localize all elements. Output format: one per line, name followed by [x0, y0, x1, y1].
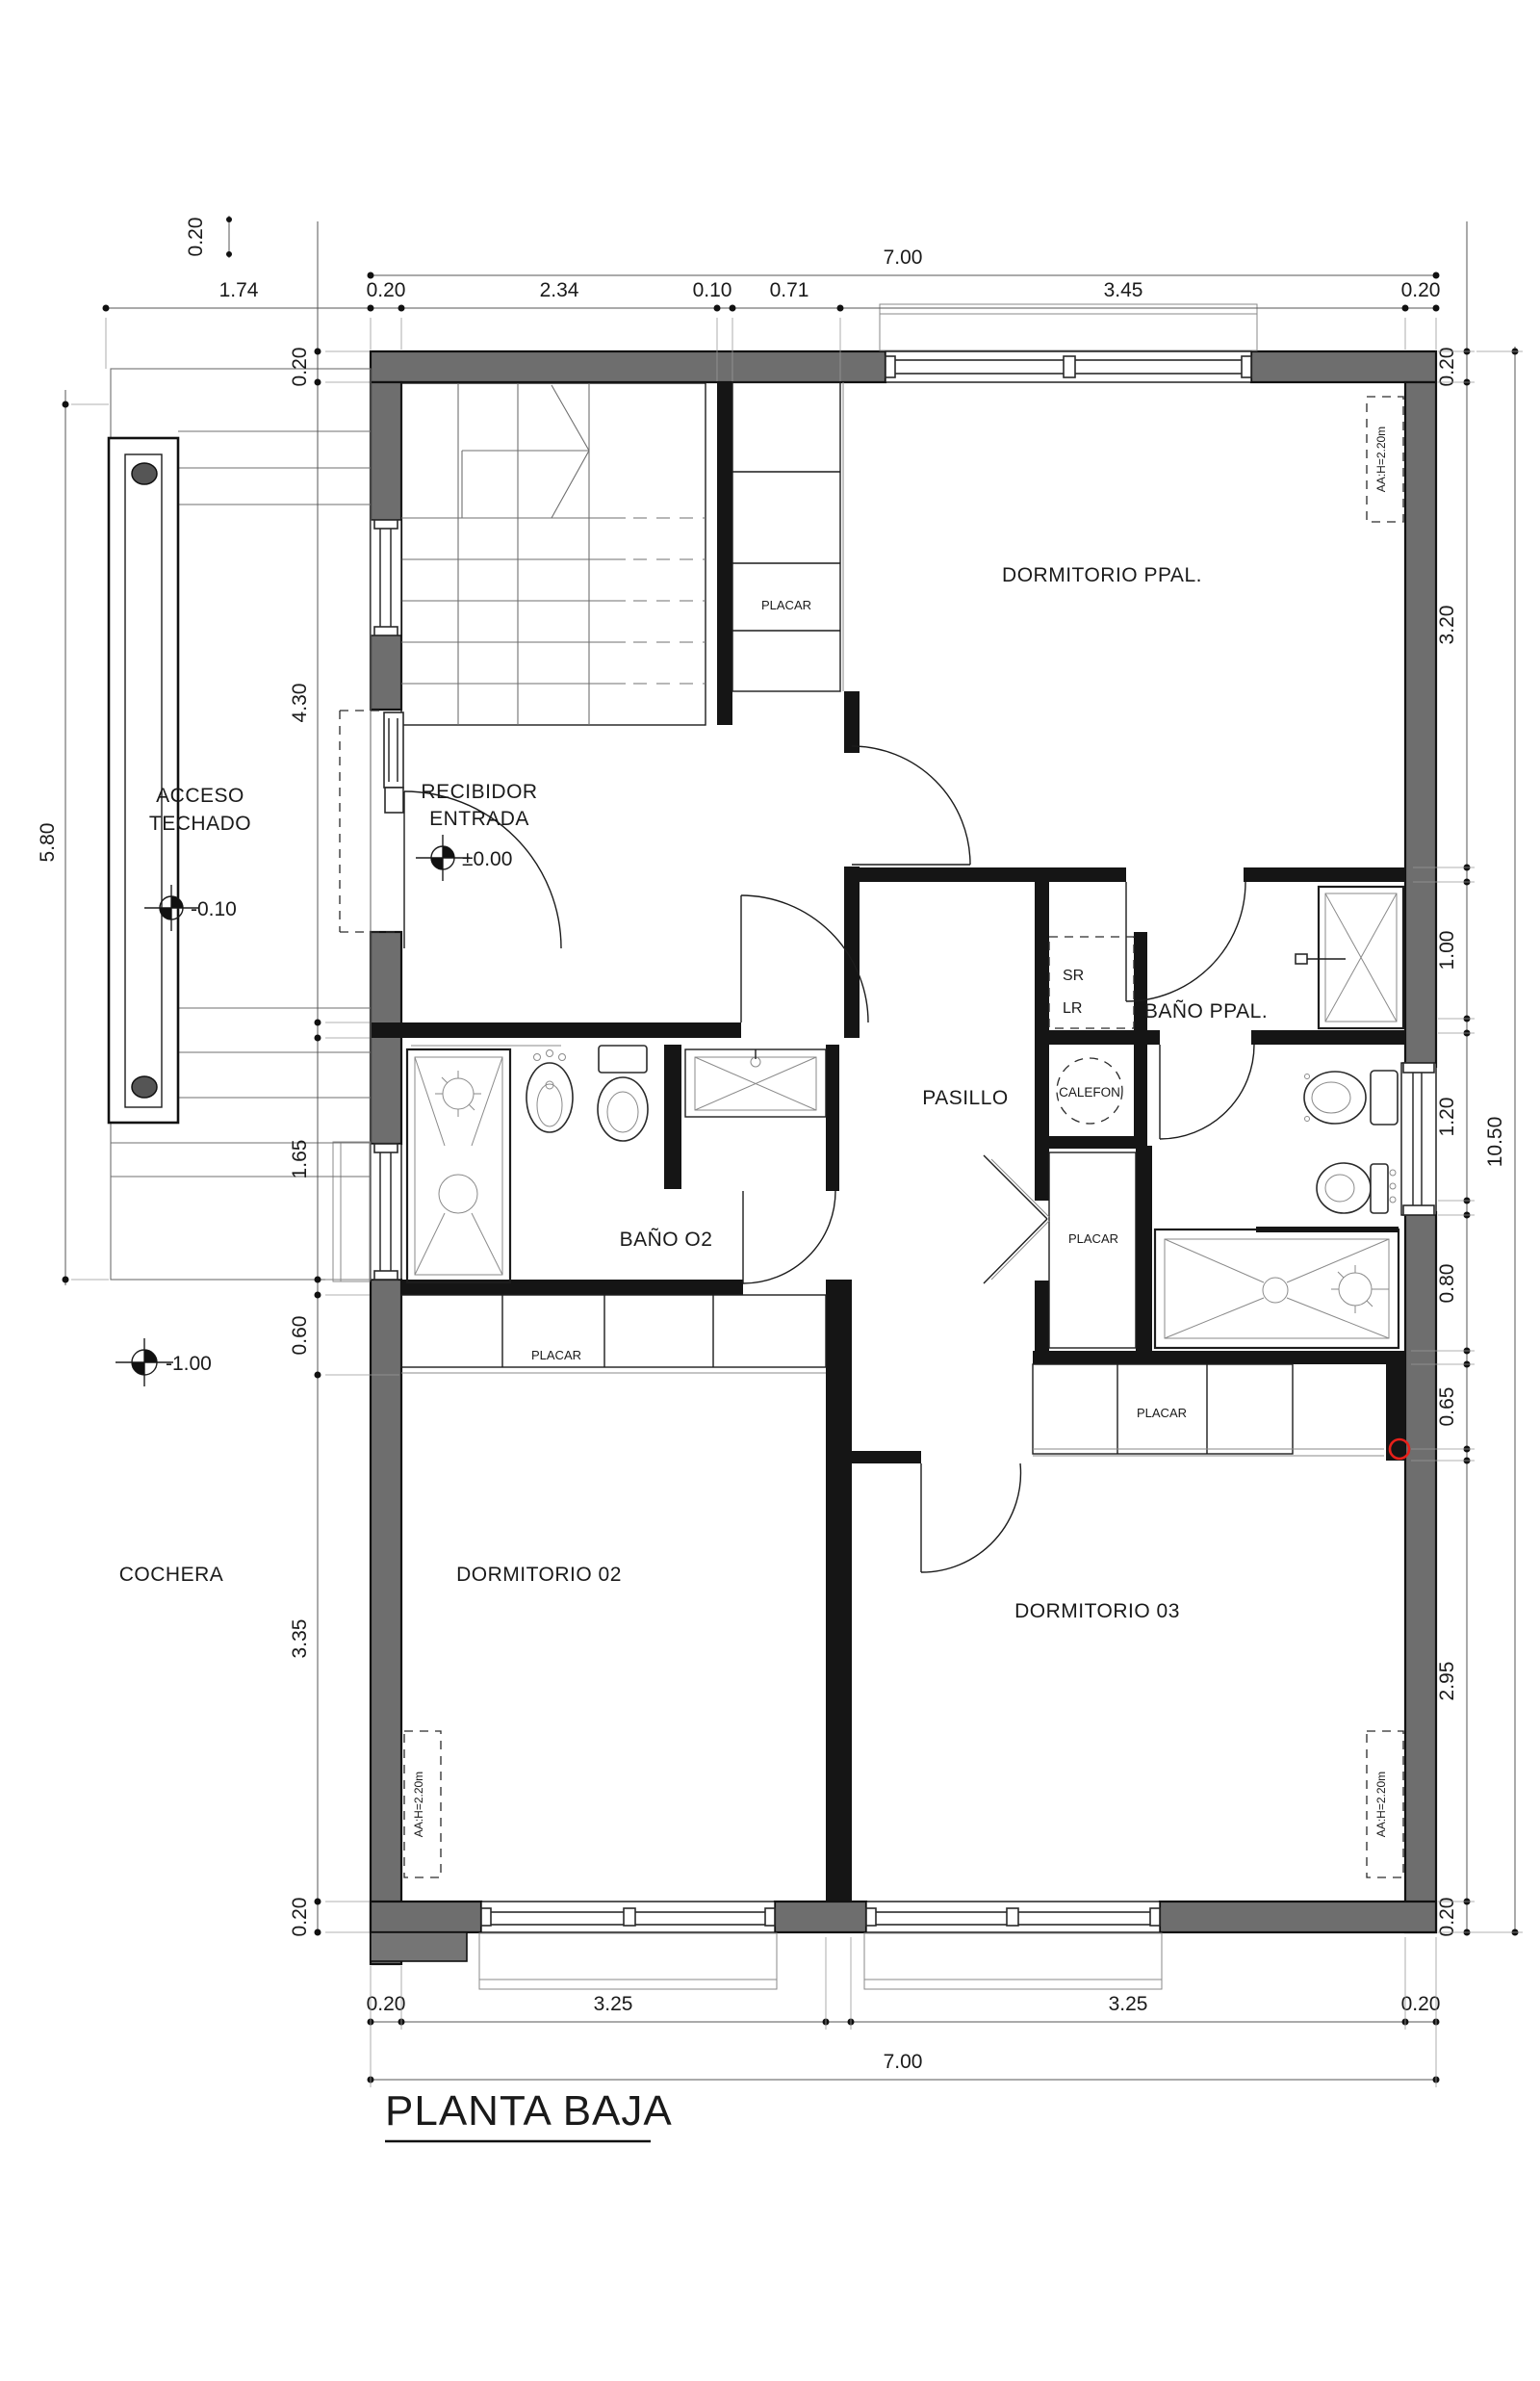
dim-left-2: 1.65	[289, 1140, 311, 1179]
dim-left-3: 0.60	[289, 1316, 311, 1356]
cochera-label: COCHERA	[119, 1564, 224, 1586]
window-stairs-left	[371, 520, 401, 635]
level-marker-recibidor: ±0.00	[416, 835, 512, 881]
dim-right-overall: 10.50	[1484, 1117, 1506, 1168]
window-dorm03-bottom	[864, 1902, 1162, 1989]
door-bano02	[743, 1191, 835, 1283]
dim-top-overall: 7.00	[884, 246, 923, 269]
dimension-bottom: 0.20 3.25 3.25 0.20 7.00	[367, 1937, 1441, 2087]
dim-top-4: 0.71	[770, 279, 809, 301]
faucet-icon	[1339, 1273, 1372, 1306]
dim-top-5: 3.45	[1104, 279, 1143, 301]
dim-left-1: 4.30	[289, 684, 311, 723]
dim-top-6: 0.20	[1401, 279, 1441, 301]
dim-right-7: 0.20	[1436, 1898, 1458, 1937]
closet-hall: PLACAR	[732, 382, 843, 691]
closet-dorm03: PLACAR	[1033, 1364, 1384, 1456]
dim-left-outer: 5.80	[37, 823, 59, 863]
recibidor-label-1: RECIBIDOR	[421, 781, 537, 803]
dorm02-label: DORMITORIO 02	[456, 1564, 622, 1586]
dim-bottom-2: 3.25	[1109, 1993, 1148, 2015]
toilet	[598, 1046, 648, 1141]
shower-tray-ppal	[1296, 887, 1403, 1028]
stair-direction-arrow	[552, 385, 589, 518]
bano-ppal-label: BAÑO PPAL.	[1144, 999, 1268, 1022]
dim-right-4: 0.80	[1436, 1264, 1458, 1304]
calefon: CALEFON	[1057, 1058, 1122, 1124]
dim-top-0: 1.74	[219, 279, 259, 301]
window-bano-ppal-right	[1401, 1063, 1436, 1215]
dim-right-1: 3.20	[1436, 606, 1458, 645]
floor-plan-page: PLACAR PLACAR PLACAR PLACAR	[0, 0, 1540, 2381]
acceso-label-1: ACCESO	[156, 785, 244, 807]
ac-label-dorm03: AA:H=2.20m	[1374, 1772, 1388, 1837]
dorm-ppal-label: DORMITORIO PPAL.	[1002, 564, 1202, 586]
dim-left-4: 3.35	[289, 1619, 311, 1659]
closet-dorm03-label: PLACAR	[1137, 1406, 1187, 1420]
closet-pasillo: PLACAR	[984, 1152, 1136, 1348]
window-bano02-left	[333, 1142, 401, 1281]
door-bano-ppal-lower	[1160, 1045, 1254, 1139]
acceso-label-2: TECHADO	[149, 813, 251, 835]
ac-label-dorm-ppal: AA:H=2.20m	[1374, 427, 1388, 492]
ac-labels: AA:H=2.20m AA:H=2.20m AA:H=2.20m	[404, 397, 1403, 1877]
column	[132, 1076, 157, 1098]
exterior-walls	[371, 351, 1436, 1964]
drawing-title: PLANTA BAJA	[385, 2087, 673, 2135]
dim-right-5: 0.65	[1436, 1387, 1458, 1427]
porch-columns	[109, 438, 178, 1123]
closet-dorm02-label: PLACAR	[531, 1348, 581, 1362]
shower-valve-icon	[1296, 954, 1307, 964]
dim-right-6: 2.95	[1436, 1662, 1458, 1701]
calefon-label: CALEFON	[1059, 1085, 1120, 1100]
sink-counter	[685, 1049, 826, 1117]
lr-label: LR	[1063, 1000, 1082, 1017]
dim-right-2: 1.00	[1436, 931, 1458, 971]
dim-left-0: 0.20	[289, 348, 311, 387]
level-cochera: -1.00	[166, 1353, 212, 1375]
sr-lr-box: SR LR	[1049, 937, 1134, 1028]
bidet-ppal	[1317, 1163, 1396, 1213]
closet-pasillo-label: PLACAR	[1068, 1231, 1118, 1246]
dim-left-corner: 0.20	[185, 218, 207, 257]
dimension-left: 0.20 0.20 4.30 1.65 0.60 3.35 0.20 5.80	[37, 216, 399, 1936]
door-dorm03	[921, 1463, 1020, 1572]
bidet	[526, 1050, 573, 1133]
floor-plan-drawing: PLACAR PLACAR PLACAR PLACAR	[0, 0, 1540, 2381]
dim-left-5: 0.20	[289, 1898, 311, 1937]
interior-walls	[371, 382, 1405, 1902]
dim-top-1: 0.20	[367, 279, 406, 301]
dim-top-3: 0.10	[693, 279, 732, 301]
shower-tray	[407, 1049, 510, 1282]
staircase	[401, 383, 706, 725]
dim-bottom-0: 0.20	[367, 1993, 406, 2015]
recibidor-label-2: ENTRADA	[429, 808, 529, 830]
bano02-label: BAÑO O2	[620, 1228, 713, 1251]
bathtub	[1155, 1227, 1399, 1348]
bano02-fixtures	[407, 1046, 826, 1282]
level-acceso: -0.10	[191, 898, 237, 920]
window-dorm-ppal-top	[880, 304, 1257, 382]
level-recibidor: ±0.00	[462, 848, 512, 870]
drain-icon	[1263, 1278, 1288, 1303]
dim-top-2: 2.34	[540, 279, 579, 301]
closet-hall-label: PLACAR	[761, 598, 811, 612]
level-marker-cochera: -1.00	[115, 1338, 212, 1386]
column	[132, 463, 157, 484]
dim-right-0: 0.20	[1436, 348, 1458, 387]
sr-label: SR	[1063, 968, 1084, 984]
drain-icon	[439, 1175, 477, 1213]
dim-bottom-3: 0.20	[1401, 1993, 1441, 2015]
bano-ppal-fixtures: SR LR CALEFON	[1049, 887, 1403, 1348]
pasillo-label: PASILLO	[922, 1087, 1009, 1109]
ac-label-dorm02: AA:H=2.20m	[412, 1772, 425, 1837]
dim-bottom-overall: 7.00	[884, 2051, 923, 2073]
window-dorm02-bottom	[479, 1902, 777, 1989]
closet-dorm02: PLACAR	[401, 1295, 826, 1373]
entrance-door	[384, 712, 561, 1046]
door-dorm-ppal	[852, 746, 970, 865]
toilet-ppal	[1304, 1071, 1398, 1125]
dim-bottom-1: 3.25	[594, 1993, 633, 2015]
dim-right-3: 1.20	[1436, 1098, 1458, 1137]
dorm03-label: DORMITORIO 03	[1014, 1600, 1180, 1622]
title-block: PLANTA BAJA	[385, 2087, 673, 2141]
